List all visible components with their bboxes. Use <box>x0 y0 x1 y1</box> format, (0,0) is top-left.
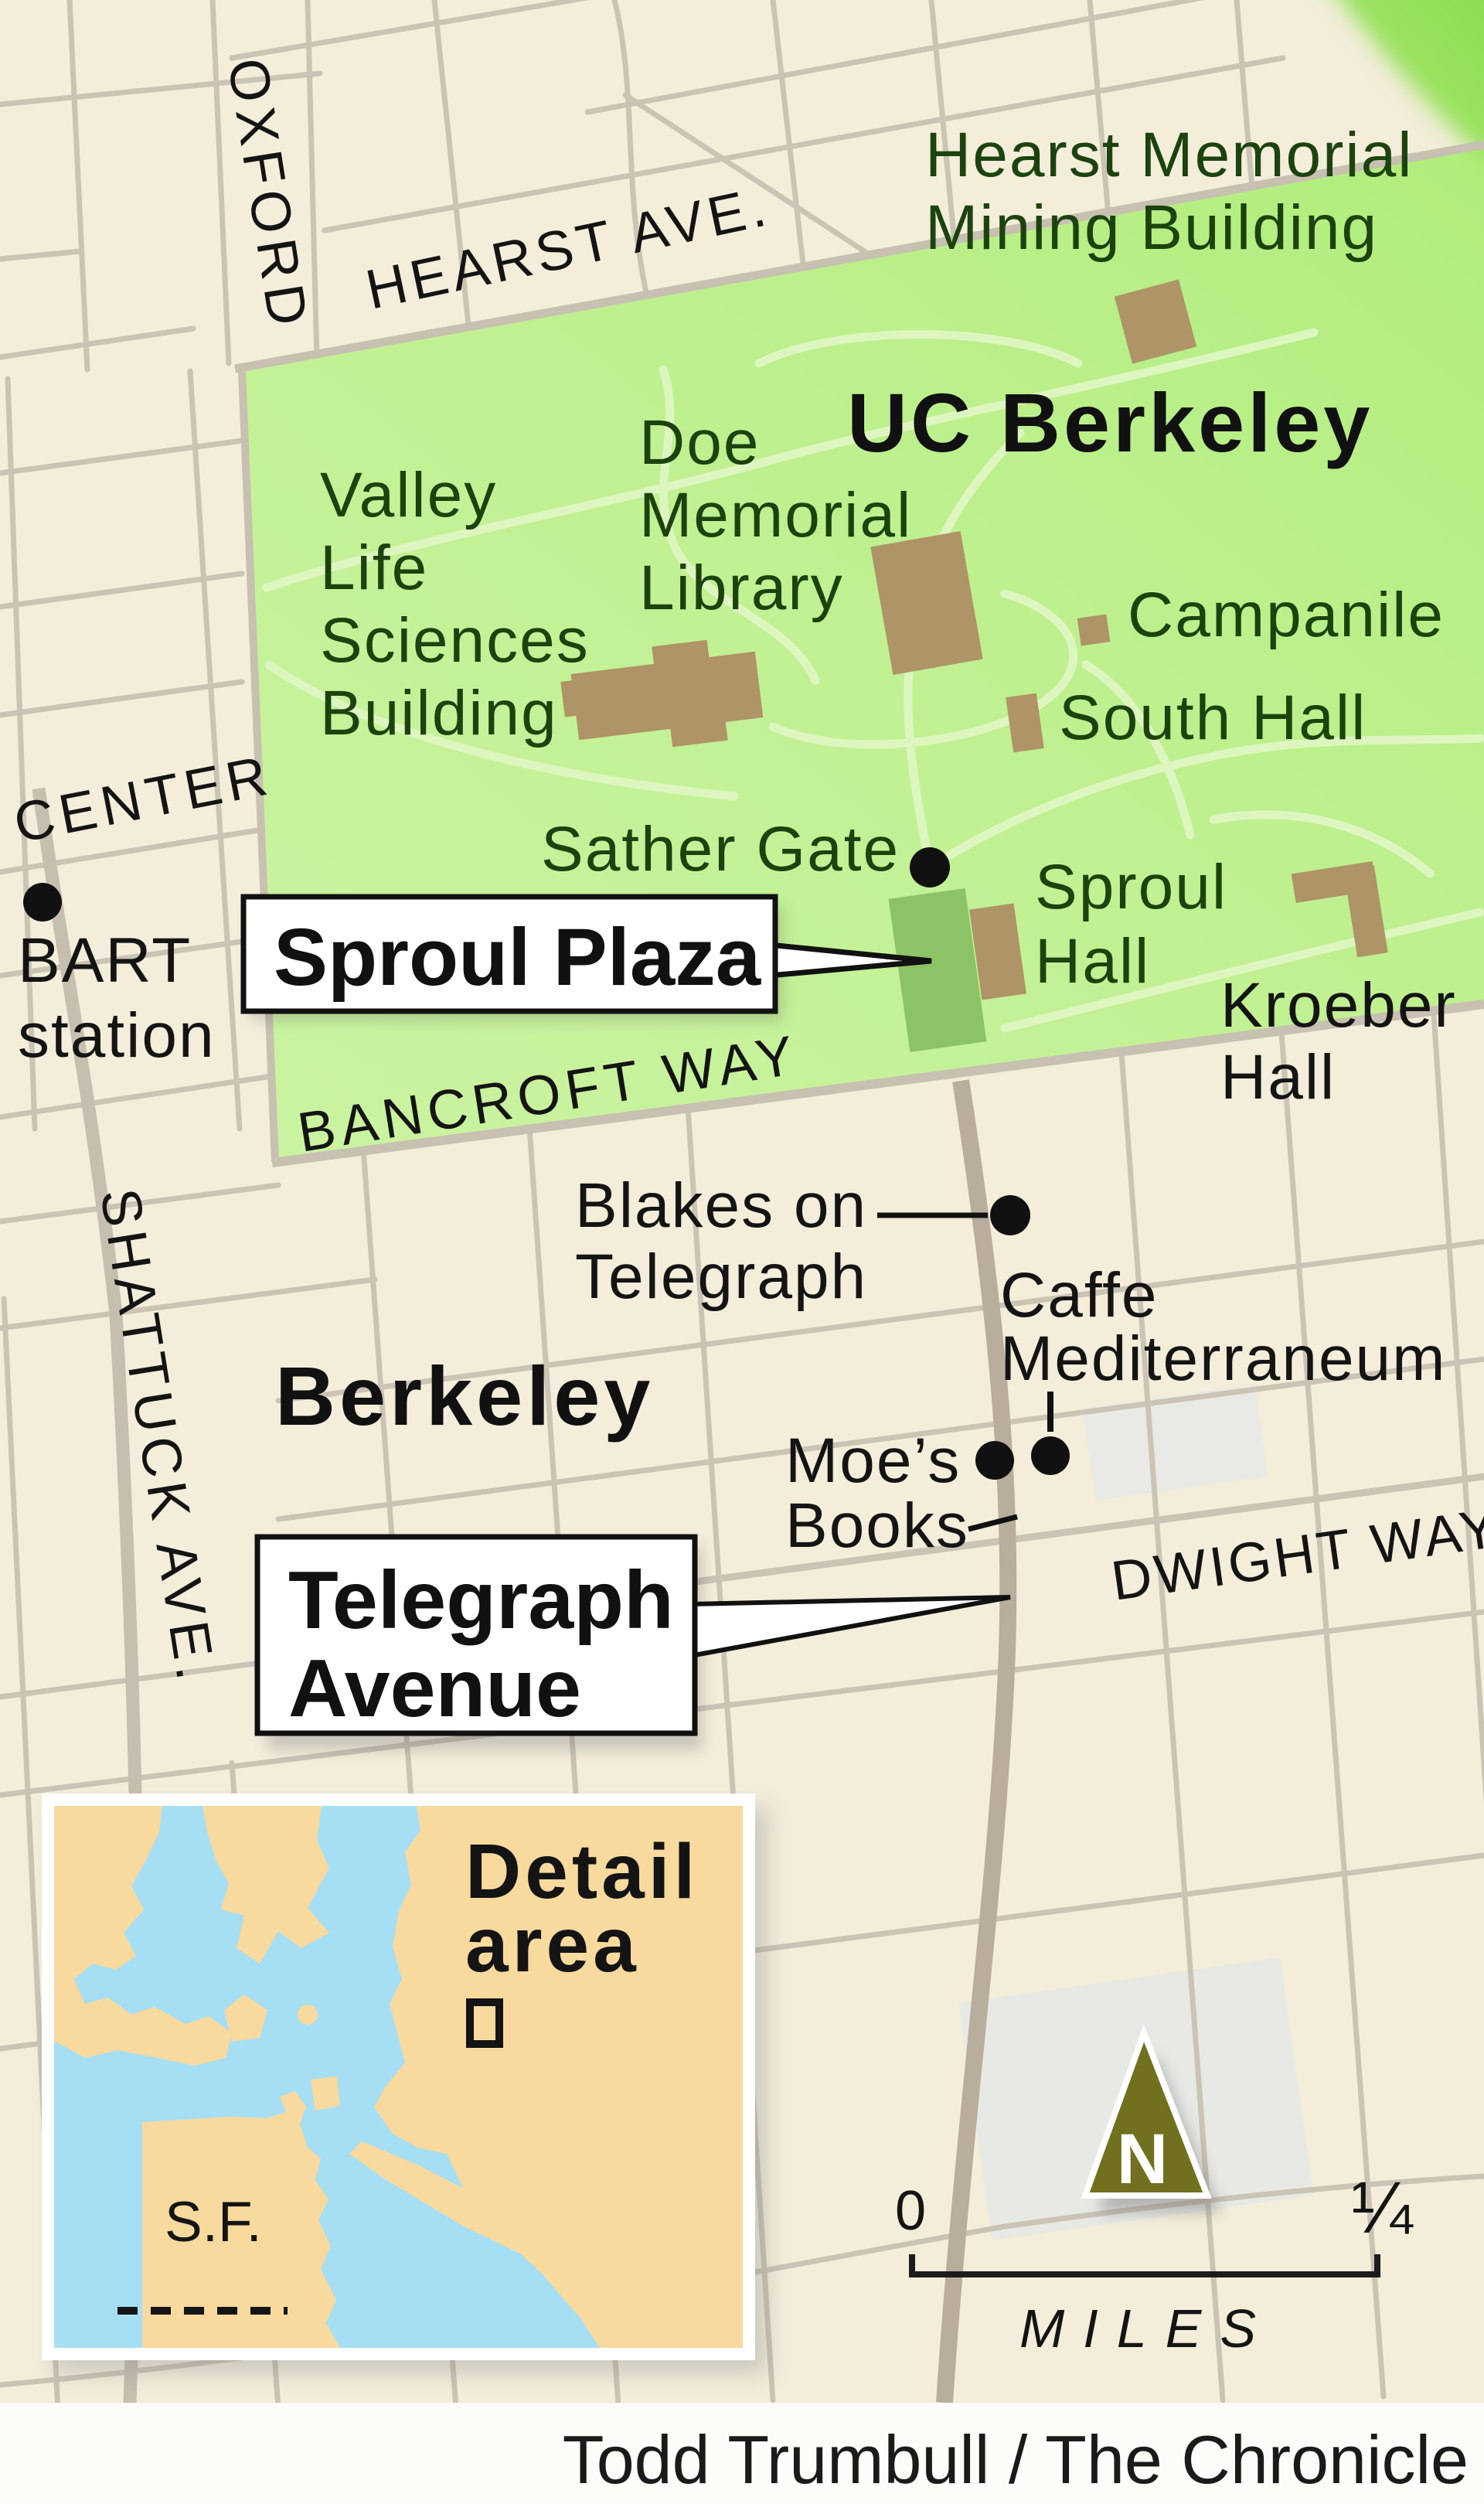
svg-text:Todd Trumbull / The Chronicle: Todd Trumbull / The Chronicle <box>563 2421 1469 2498</box>
svg-text:Campanile: Campanile <box>1128 580 1445 650</box>
svg-text:Hall: Hall <box>1035 926 1150 996</box>
svg-text:Moe’s: Moe’s <box>785 1426 961 1496</box>
svg-text:area: area <box>465 1902 640 1988</box>
svg-text:¼: ¼ <box>1351 2167 1414 2249</box>
svg-text:Hall: Hall <box>1220 1042 1336 1112</box>
svg-text:Berkeley: Berkeley <box>275 1349 654 1443</box>
svg-text:Avenue: Avenue <box>288 1643 581 1734</box>
svg-text:Telegraph: Telegraph <box>288 1555 674 1646</box>
svg-text:Sproul: Sproul <box>1035 852 1227 922</box>
svg-text:Hearst Memorial: Hearst Memorial <box>925 120 1413 190</box>
svg-text:Mediterraneum: Mediterraneum <box>1000 1324 1446 1394</box>
svg-text:Blakes on: Blakes on <box>575 1170 867 1241</box>
svg-text:Memorial: Memorial <box>639 480 912 550</box>
svg-text:Valley: Valley <box>320 460 497 530</box>
svg-text:Telegraph: Telegraph <box>575 1242 867 1312</box>
svg-text:UC Berkeley: UC Berkeley <box>847 376 1373 469</box>
svg-text:Life: Life <box>320 533 428 603</box>
svg-text:station: station <box>18 1000 216 1071</box>
svg-text:Library: Library <box>639 553 844 623</box>
svg-text:Building: Building <box>320 678 558 748</box>
svg-text:MILES: MILES <box>1019 2298 1275 2359</box>
svg-text:South Hall: South Hall <box>1059 683 1367 753</box>
svg-text:Sather Gate: Sather Gate <box>541 814 900 884</box>
svg-text:Doe: Doe <box>639 407 760 478</box>
svg-text:N: N <box>1117 2120 1168 2199</box>
svg-text:Kroeber: Kroeber <box>1220 970 1457 1041</box>
svg-text:0: 0 <box>895 2180 926 2242</box>
svg-text:Caffe: Caffe <box>1000 1260 1159 1330</box>
svg-text:Mining Building: Mining Building <box>925 192 1378 263</box>
svg-text:Sproul Plaza: Sproul Plaza <box>274 912 762 1003</box>
svg-text:S.F.: S.F. <box>165 2191 262 2254</box>
svg-text:Books: Books <box>785 1490 969 1561</box>
svg-text:Sciences: Sciences <box>320 605 590 676</box>
svg-text:BART: BART <box>18 925 192 996</box>
